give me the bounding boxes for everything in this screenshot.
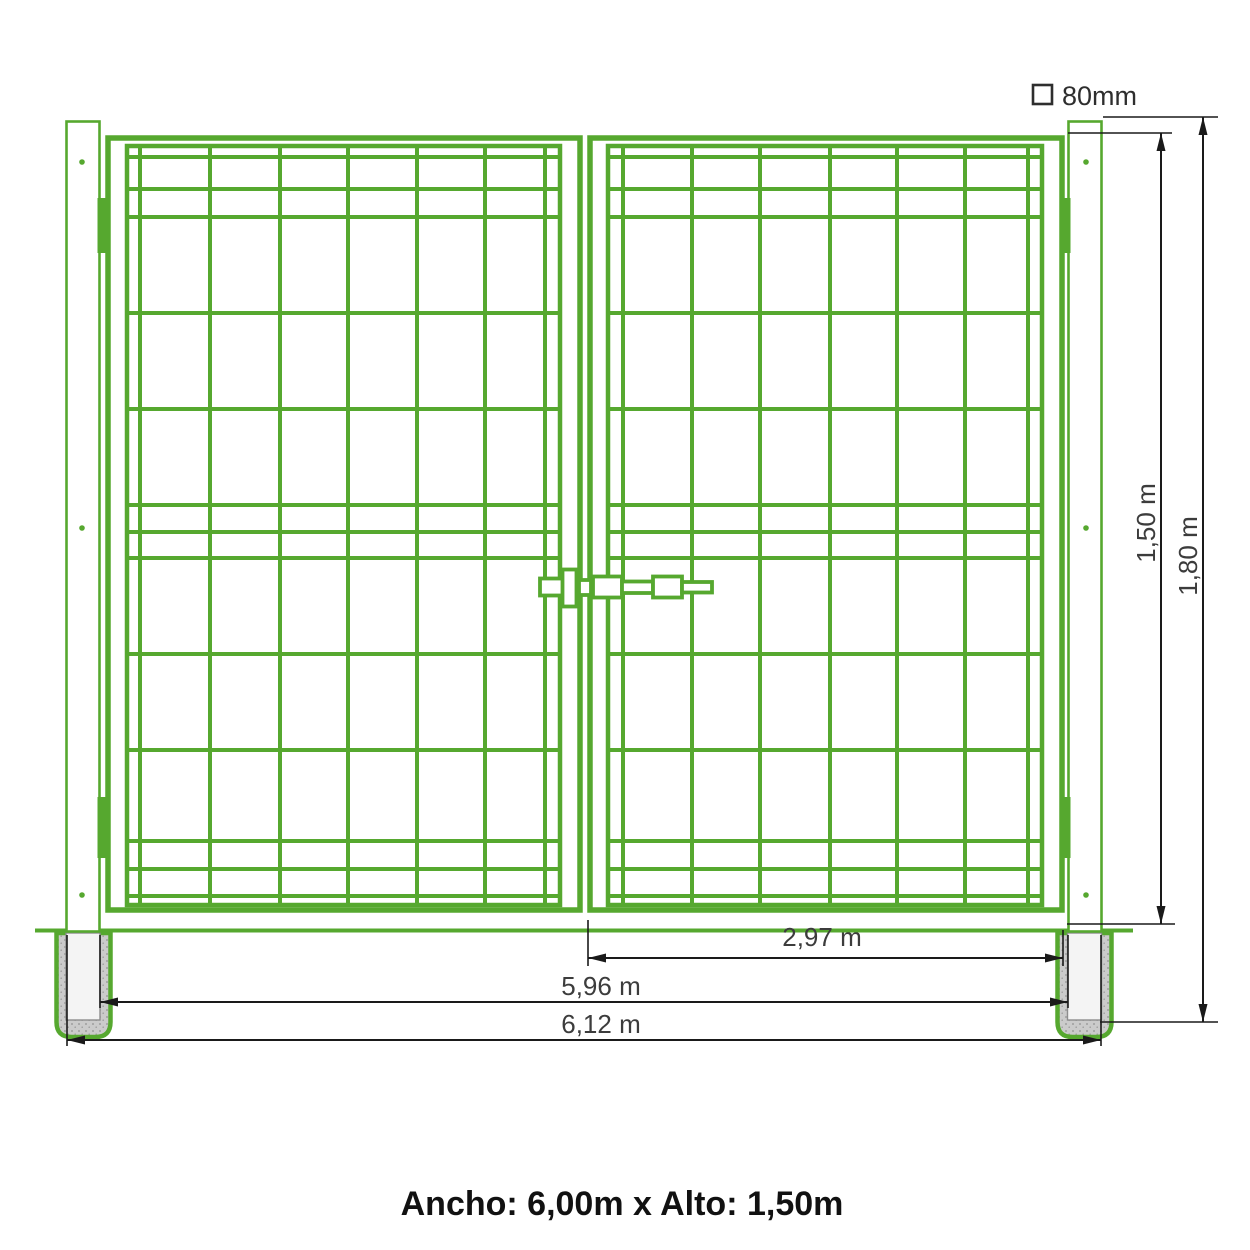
profile-size-label: 80mm [1033, 81, 1137, 111]
latch [540, 570, 712, 607]
gate-diagram: 1,50 m 1,80 m 2,97 m 5,96 m 6,12 m 80mm … [0, 0, 1250, 1250]
square-profile-icon [1033, 85, 1052, 104]
left-leaf-frame [108, 138, 580, 910]
post-mounting-hole [79, 525, 85, 531]
hinge [1061, 198, 1071, 253]
right-post [1069, 122, 1102, 932]
dimension-label-clear-width: 5,96 m [561, 971, 641, 1001]
right-post-hole [1068, 933, 1102, 1020]
left-post-hole [66, 933, 100, 1020]
post-mounting-hole [1083, 159, 1089, 165]
hinge [98, 198, 108, 253]
dimension-label-post-height: 1,80 m [1173, 516, 1203, 596]
dimension-label-gate-height: 1,50 m [1131, 483, 1161, 563]
mesh-panel-border [608, 146, 1042, 905]
left-leaf-mesh [127, 146, 560, 905]
mesh-panel-border [127, 146, 560, 905]
dimension-post-height: 1,80 m [1173, 117, 1208, 1022]
hinges [98, 198, 1071, 858]
left-post [67, 122, 100, 932]
left-footing [57, 933, 111, 1037]
post-mounting-hole [79, 159, 85, 165]
dimension-total-width: 6,12 m [67, 1009, 1101, 1045]
post-mounting-hole [79, 892, 85, 898]
hinge [1061, 797, 1071, 858]
dimension-gate-height: 1,50 m [1131, 133, 1166, 924]
dimension-clear-width: 5,96 m [100, 971, 1068, 1007]
dimension-label-total-width: 6,12 m [561, 1009, 641, 1039]
post-mounting-hole [1083, 892, 1089, 898]
right-leaf-frame [590, 138, 1062, 910]
right-leaf-mesh [608, 146, 1042, 905]
dimension-leaf-width: 2,97 m [588, 922, 1063, 963]
caption: Ancho: 6,00m x Alto: 1,50m [401, 1185, 844, 1223]
hinge [98, 797, 108, 858]
profile-size-text: 80mm [1062, 81, 1137, 111]
post-mounting-hole [1083, 525, 1089, 531]
dimension-label-leaf-width: 2,97 m [782, 922, 862, 952]
